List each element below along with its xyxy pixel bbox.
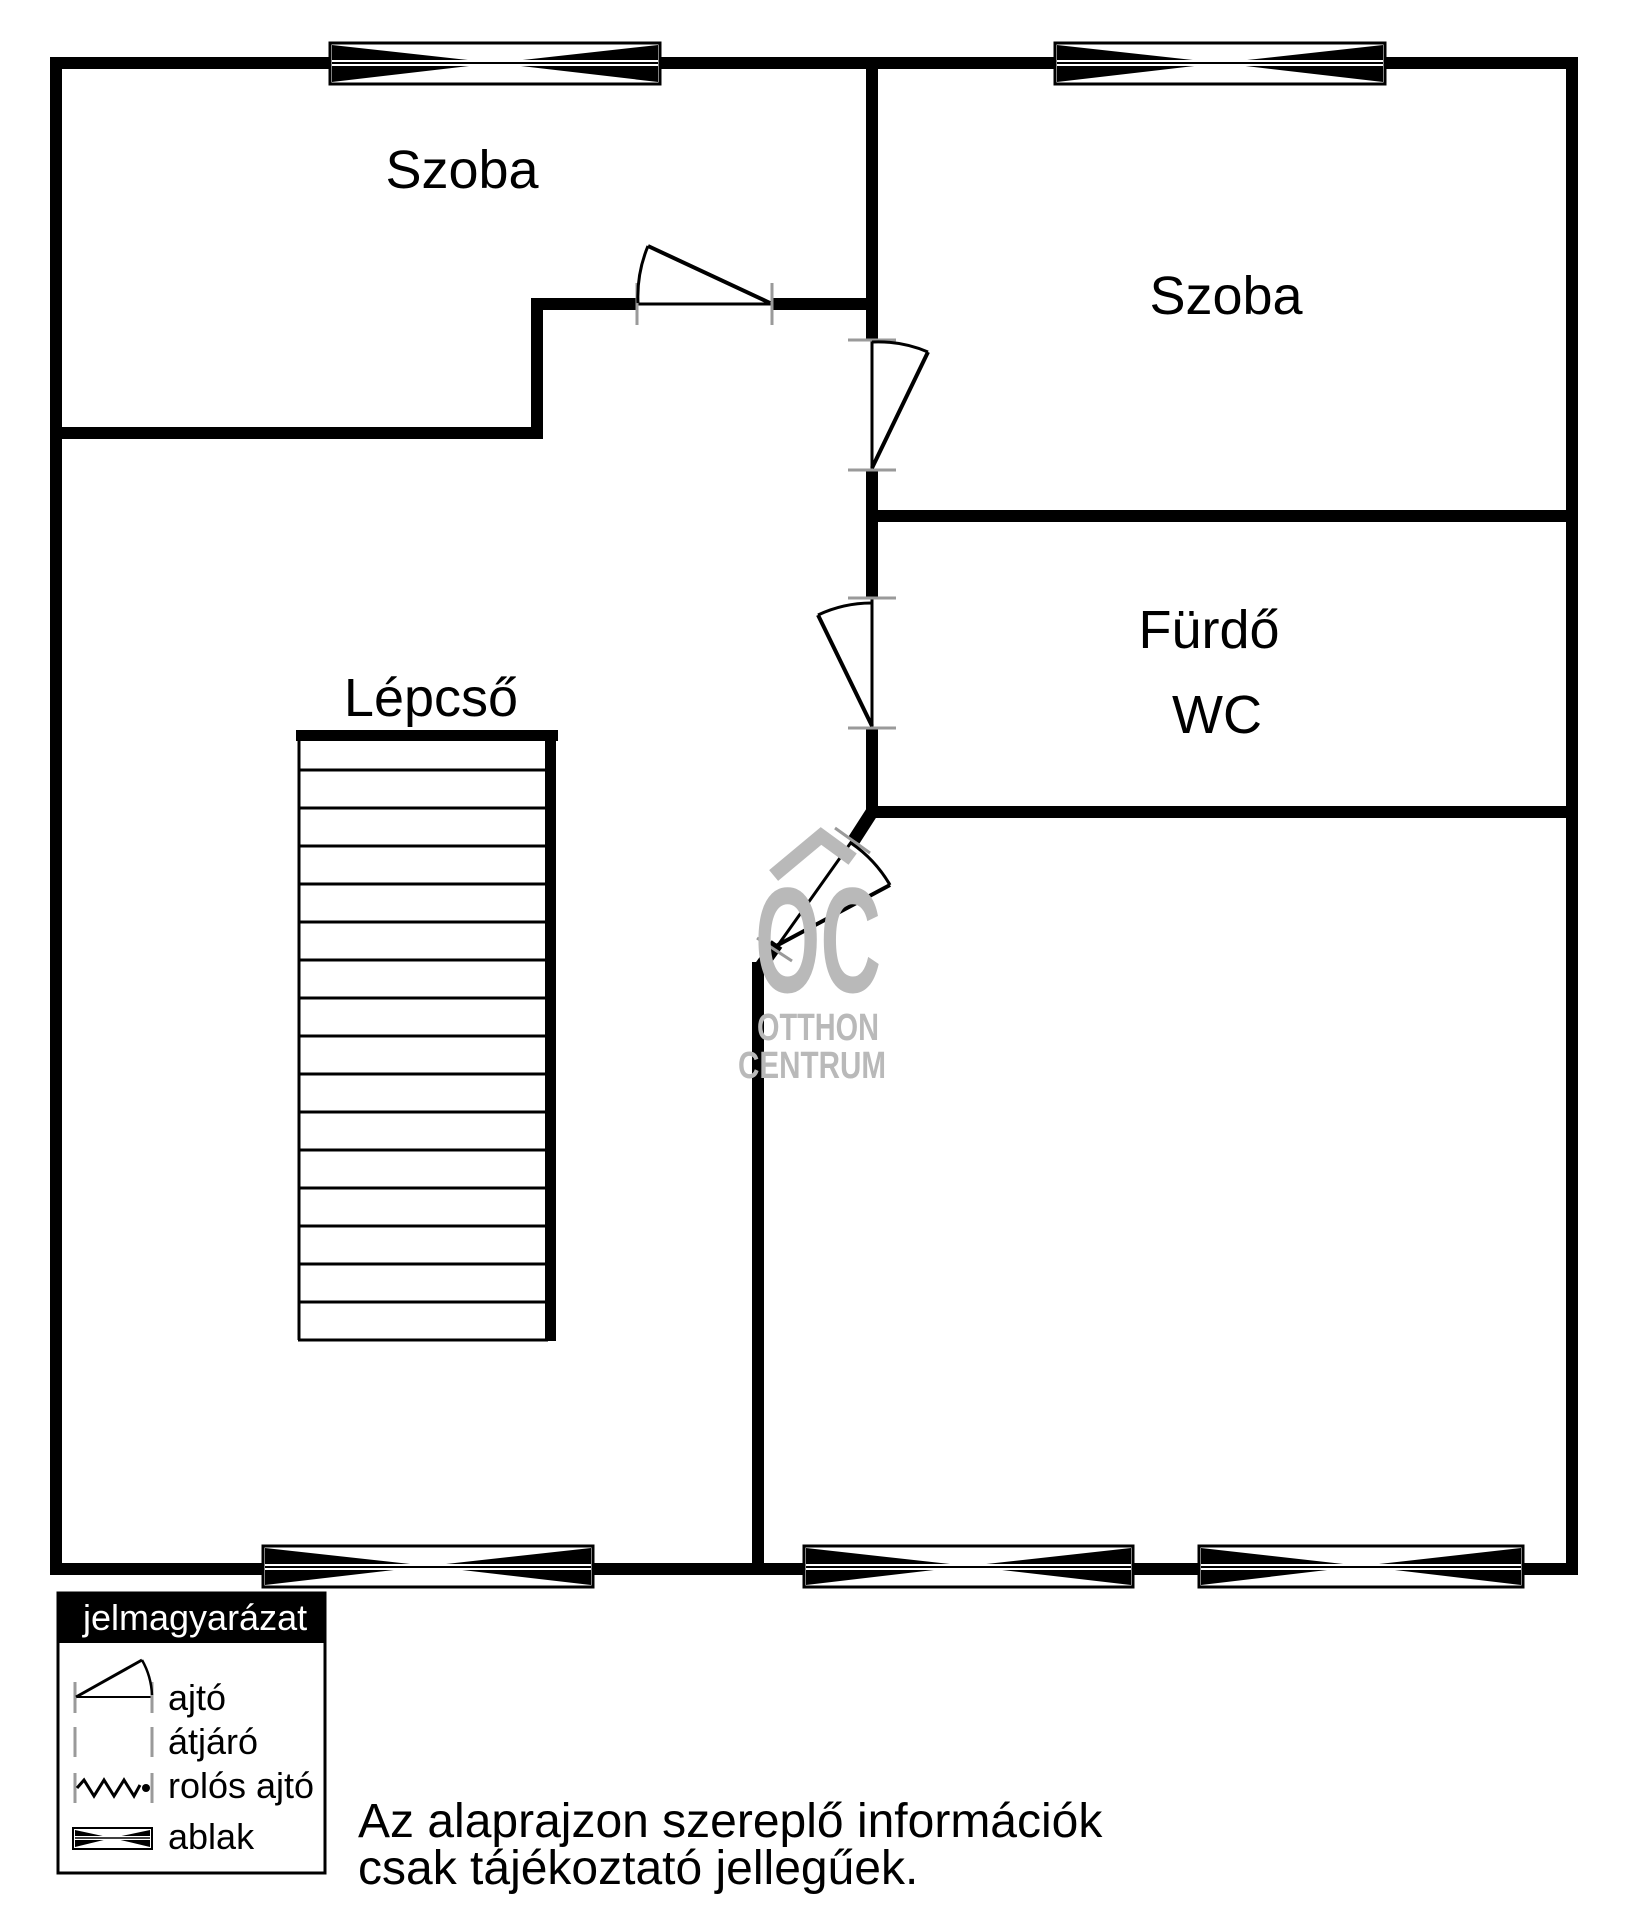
wall-step-vertical bbox=[531, 298, 543, 439]
legend-label-passage: átjáró bbox=[168, 1721, 258, 1762]
wall-top-2 bbox=[658, 57, 1057, 69]
wall-furdo-bottom bbox=[866, 806, 1566, 818]
legend-label-door: ajtó bbox=[168, 1677, 226, 1718]
floorplan-svg: OC OTTHON CENTRUM Szoba Szoba Fürdő WC L… bbox=[0, 0, 1630, 1920]
door-symbol-szoba-left bbox=[637, 246, 772, 325]
wall-step-top-left bbox=[531, 298, 637, 310]
stairs-right-edge bbox=[545, 730, 556, 1341]
wall-right bbox=[1566, 57, 1578, 1575]
wall-central-1 bbox=[866, 57, 878, 340]
wall-left bbox=[50, 57, 62, 1575]
interior-walls bbox=[53, 57, 1566, 1575]
room-label-szoba-left: Szoba bbox=[385, 140, 539, 200]
disclaimer-text: Az alaprajzon szereplő információk csak … bbox=[358, 1795, 1103, 1895]
floorplan-page: OC OTTHON CENTRUM Szoba Szoba Fürdő WC L… bbox=[0, 0, 1630, 1920]
window-symbol-bottom-right bbox=[1199, 1546, 1523, 1587]
window-symbol-bottom-left bbox=[263, 1546, 593, 1587]
window-symbol-bottom-middle bbox=[804, 1546, 1133, 1587]
wall-bottom-1 bbox=[50, 1563, 265, 1575]
stairs bbox=[296, 730, 558, 1341]
legend-label-window: ablak bbox=[168, 1816, 255, 1857]
room-label-wc: WC bbox=[1172, 685, 1262, 745]
room-label-lepcso: Lépcső bbox=[344, 668, 518, 728]
watermark-centrum-text: CENTRUM bbox=[738, 1045, 886, 1087]
wall-bottom-2 bbox=[591, 1563, 806, 1575]
watermark-logo: OC OTTHON CENTRUM bbox=[738, 836, 886, 1087]
window-symbol-top-left bbox=[330, 43, 660, 84]
wall-top-1 bbox=[50, 57, 332, 69]
disclaimer-line-1: Az alaprajzon szereplő információk bbox=[358, 1795, 1103, 1848]
legend-label-roller-door: rolós ajtó bbox=[168, 1765, 314, 1806]
wall-step-top-right bbox=[772, 298, 878, 310]
wall-stub-upper bbox=[854, 812, 872, 840]
stairs-treads bbox=[299, 770, 545, 1302]
wall-top-3 bbox=[1383, 57, 1578, 69]
stairs-top-edge bbox=[296, 730, 558, 741]
legend-title: jelmagyarázat bbox=[82, 1597, 307, 1638]
watermark-otthon-text: OTTHON bbox=[757, 1007, 879, 1049]
room-label-furdo: Fürdő bbox=[1138, 600, 1279, 660]
door-symbol-furdo bbox=[818, 598, 896, 728]
wall-central-2 bbox=[866, 470, 878, 598]
door-symbol-szoba-right bbox=[848, 340, 928, 470]
wall-bottom-4 bbox=[1523, 1563, 1578, 1575]
legend: jelmagyarázat ajtó átjáró rolós ajtó bbox=[58, 1593, 325, 1873]
wall-bottom-3 bbox=[1131, 1563, 1199, 1575]
wall-szoba-left-bottom bbox=[53, 427, 543, 439]
legend-window-icon bbox=[73, 1828, 152, 1849]
disclaimer-line-2: csak tájékoztató jellegűek. bbox=[358, 1842, 918, 1895]
wall-central-3 bbox=[866, 728, 878, 818]
wall-furdo-top bbox=[866, 510, 1566, 522]
watermark-oc-text: OC bbox=[755, 856, 881, 1024]
window-symbol-top-right bbox=[1055, 43, 1385, 84]
room-label-szoba-right: Szoba bbox=[1149, 266, 1303, 326]
